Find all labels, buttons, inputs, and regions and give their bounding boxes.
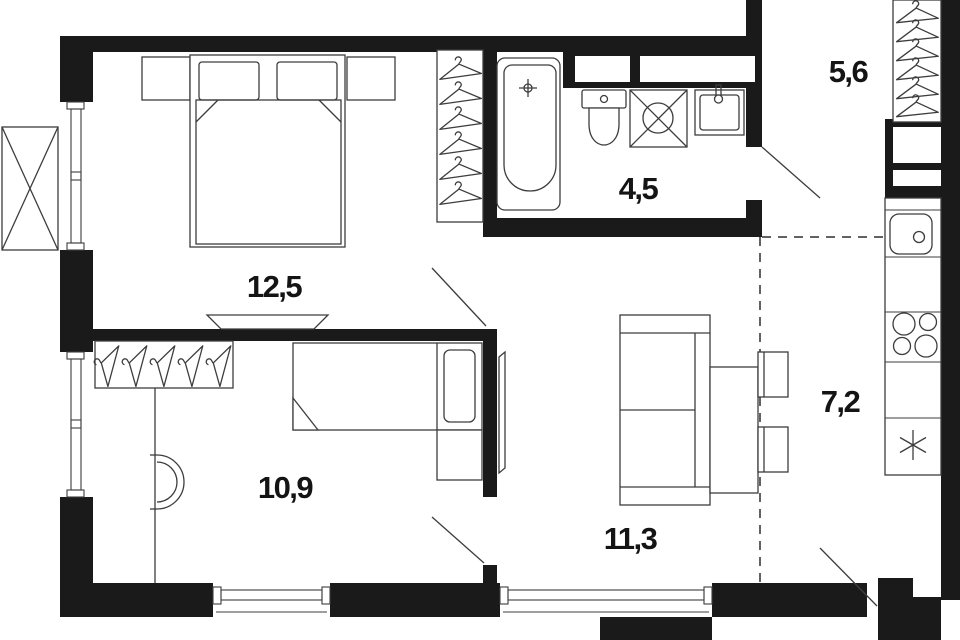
chair-icon	[758, 352, 788, 397]
single-bed-icon	[293, 343, 482, 430]
room-label-living-room: 11,3	[604, 521, 658, 556]
door-swing-icon	[432, 517, 484, 563]
wall-bathroom-bottom	[483, 218, 762, 237]
wall-bottom-3	[712, 583, 867, 617]
dining-table-icon	[710, 367, 758, 493]
wall-top	[60, 36, 762, 52]
ac-unit-icon	[2, 127, 58, 250]
floor-plan-canvas: 12,5 10,9 11,3 4,5 5,6 7,2	[0, 0, 960, 640]
wall-entrance-stub	[746, 0, 762, 52]
hallway-fixtures	[893, 0, 941, 122]
wall-left-2	[60, 250, 93, 352]
tv-icon	[499, 352, 505, 473]
window-icon	[60, 352, 93, 497]
room-label-hallway: 5,6	[829, 54, 869, 89]
wall-balcony-stub	[600, 617, 712, 640]
wall-vertical-upper	[483, 36, 497, 237]
wall-door-stub	[483, 565, 497, 583]
wall-bathroom-right	[746, 88, 762, 147]
wall-bottom-1	[60, 583, 213, 617]
wardrobe-bedroom	[437, 50, 483, 222]
vent-shaft-icon	[640, 56, 755, 82]
wall-corner-block	[878, 578, 941, 640]
wall-bottom-2	[330, 583, 500, 617]
nightstand	[142, 57, 190, 100]
double-bed-icon	[190, 55, 345, 247]
kids-room-fixtures	[89, 341, 484, 583]
shower-icon	[630, 90, 687, 147]
toilet-icon	[582, 90, 626, 145]
floor-plan: 12,5 10,9 11,3 4,5 5,6 7,2	[0, 0, 960, 640]
sofa-icon	[620, 315, 710, 505]
shelf	[207, 315, 328, 329]
room-label-kitchen: 7,2	[821, 384, 860, 419]
vent-shaft-icon	[575, 56, 630, 82]
window-icon	[500, 583, 712, 617]
chair-icon	[758, 427, 788, 472]
window-icon	[213, 583, 330, 617]
room-label-kids-room: 10,9	[258, 470, 314, 505]
nightstand	[347, 57, 395, 100]
living-room-fixtures	[499, 315, 877, 606]
kitchen-fixtures	[885, 198, 941, 475]
washbasin-icon	[695, 85, 744, 135]
room-label-bathroom: 4,5	[619, 171, 659, 206]
door-swing-icon	[432, 268, 486, 326]
wall-mid-horizontal	[93, 329, 497, 341]
window-icon	[60, 102, 93, 250]
wall-bathroom-corner	[746, 200, 762, 237]
wardrobe-kids	[89, 341, 233, 388]
door-swing-icon	[762, 147, 820, 198]
wall-left-1	[60, 36, 93, 102]
wall-right	[941, 0, 960, 600]
wardrobe-hallway	[893, 0, 941, 122]
vent-shaft-icon	[893, 170, 941, 186]
room-label-bedroom: 12,5	[247, 269, 303, 304]
nightstand	[437, 430, 482, 480]
vent-shaft-icon	[893, 127, 941, 163]
bathtub-icon	[497, 58, 560, 210]
wall-vertical-lower	[483, 329, 497, 497]
